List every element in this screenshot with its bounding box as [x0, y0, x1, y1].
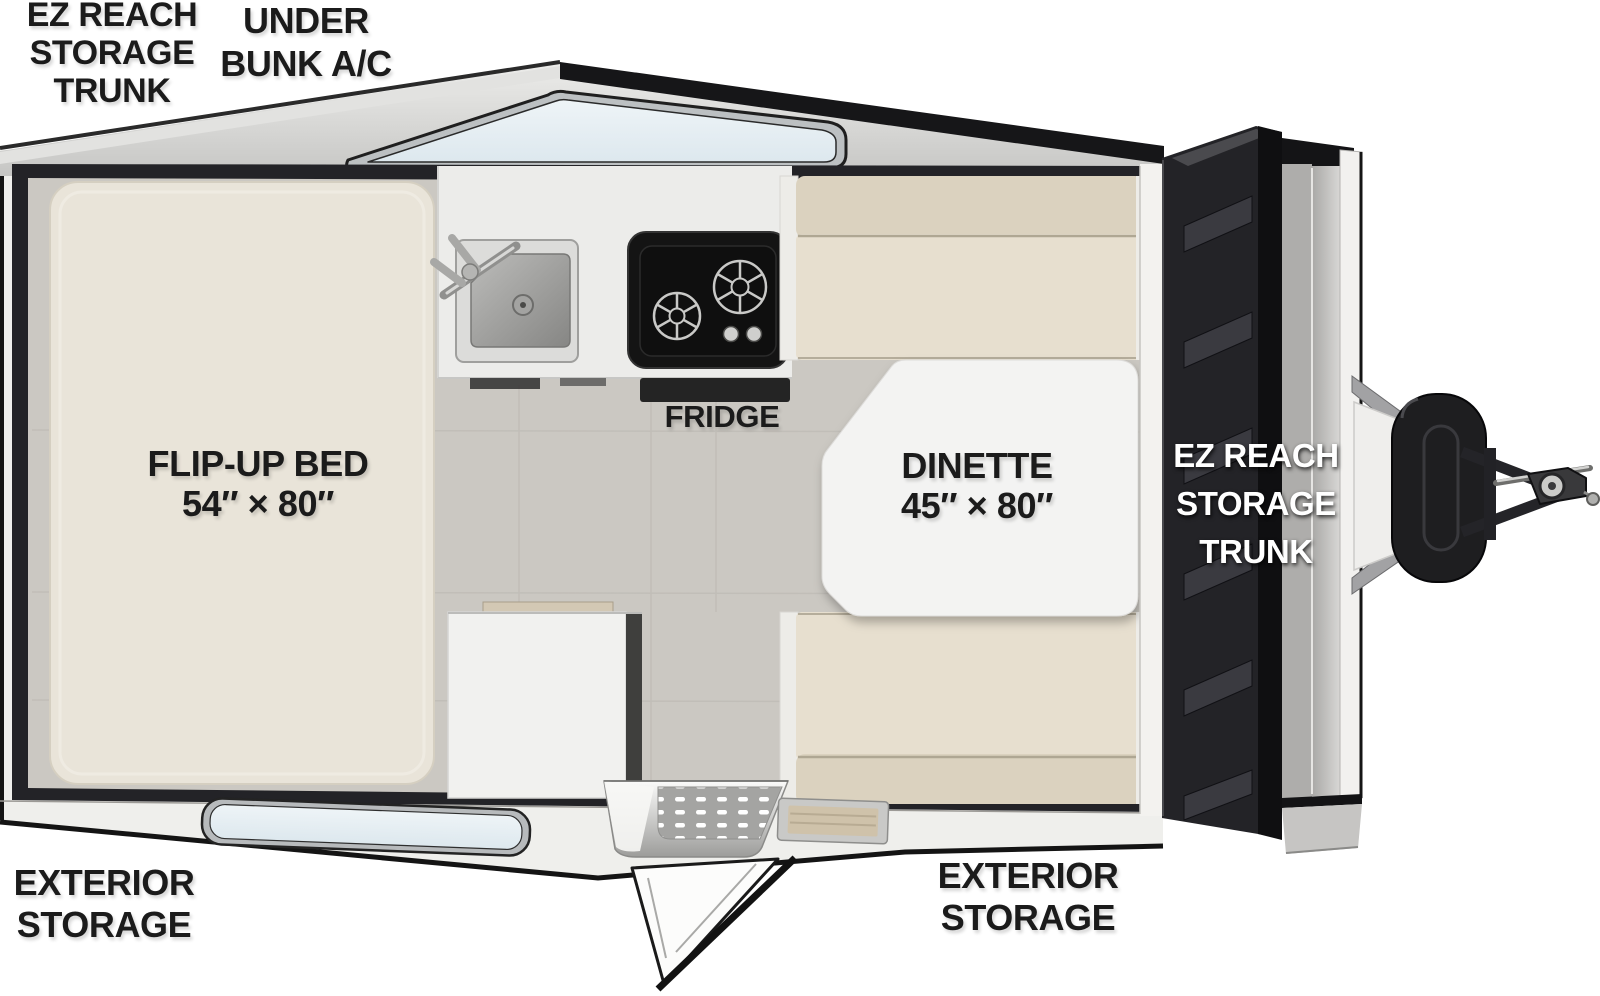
- step-mat: [777, 798, 888, 844]
- label-rear-storage-trunk: EZ REACH STORAGE TRUNK: [1173, 432, 1338, 576]
- two-burner-stove: [628, 232, 788, 368]
- label-line: FRIDGE: [665, 399, 780, 435]
- label-line: 54″ × 80″: [148, 484, 369, 524]
- sink: [434, 238, 578, 362]
- label-line: STORAGE: [1173, 480, 1338, 528]
- label-line: DINETTE: [901, 446, 1053, 486]
- propane-cover: [1392, 394, 1486, 582]
- label-line: TRUNK: [1173, 528, 1338, 576]
- label-flip-up-bed: FLIP-UP BED 54″ × 80″: [148, 444, 369, 524]
- label-front-storage-trunk: EZ REACH STORAGE TRUNK: [27, 0, 198, 110]
- label-exterior-storage-right: EXTERIOR STORAGE: [938, 855, 1119, 939]
- dinette-bench-rear: [780, 612, 1146, 804]
- label-line: BUNK A/C: [220, 42, 391, 85]
- label-under-bunk-ac: UNDER BUNK A/C: [220, 0, 391, 85]
- dinette-bench-front: [780, 176, 1146, 360]
- floorplan-page: EZ REACH STORAGE TRUNK UNDER BUNK A/C FL…: [0, 0, 1600, 996]
- label-line: STORAGE: [938, 897, 1119, 939]
- label-line: EZ REACH: [1173, 432, 1338, 480]
- label-line: 45″ × 80″: [901, 486, 1053, 526]
- entry-door-open: [632, 858, 795, 989]
- label-fridge: FRIDGE: [665, 399, 780, 435]
- label-line: EXTERIOR: [14, 862, 195, 904]
- label-exterior-storage-left: EXTERIOR STORAGE: [14, 862, 195, 946]
- label-line: STORAGE: [14, 904, 195, 946]
- under-counter-shadow: [560, 378, 606, 386]
- stove-knob: [747, 327, 762, 342]
- stove-knob: [724, 327, 739, 342]
- label-line: STORAGE: [27, 34, 198, 72]
- under-counter-shadow: [470, 378, 540, 389]
- storage-cabinet: [448, 602, 642, 798]
- entry-step: [604, 781, 788, 857]
- right-wall: [1140, 164, 1164, 816]
- label-line: UNDER: [220, 0, 391, 42]
- label-dinette: DINETTE 45″ × 80″: [901, 446, 1053, 526]
- label-line: EZ REACH: [27, 0, 198, 34]
- label-line: EXTERIOR: [938, 855, 1119, 897]
- label-line: TRUNK: [27, 72, 198, 110]
- label-line: FLIP-UP BED: [148, 444, 369, 484]
